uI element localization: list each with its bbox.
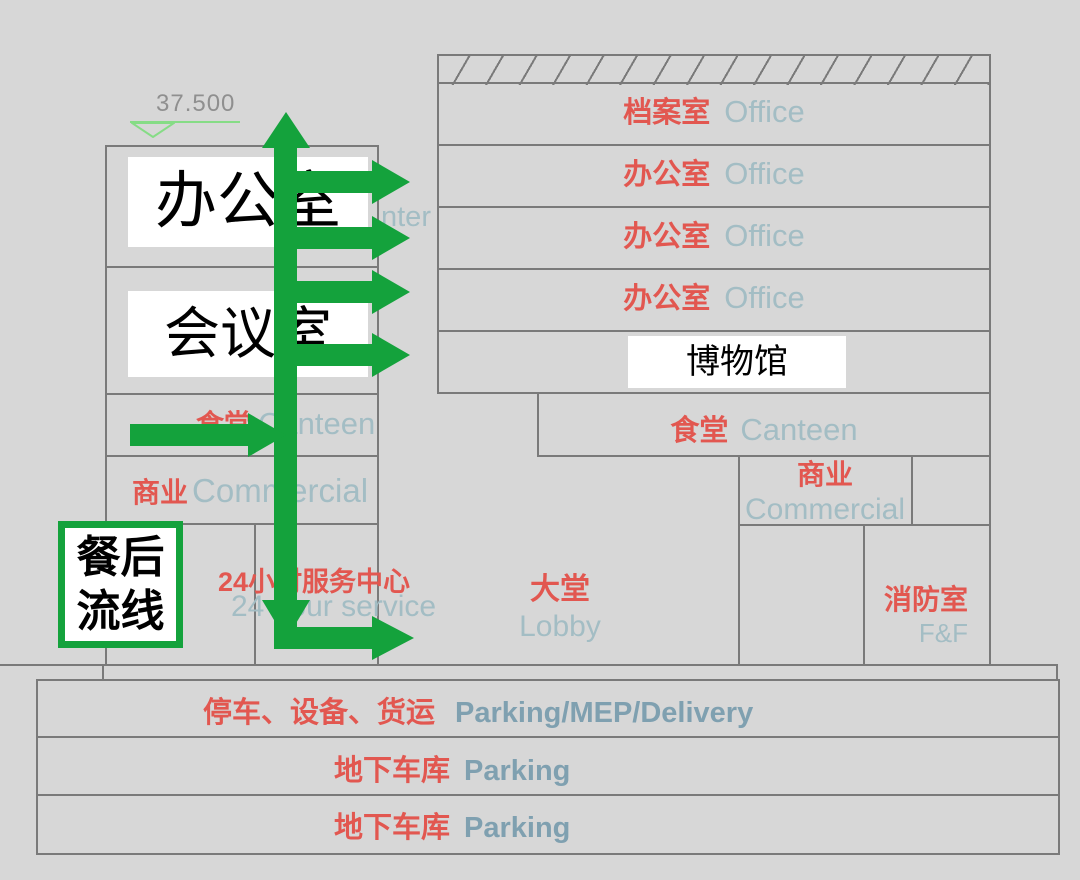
room-commercial-right-en: Commercial (745, 495, 905, 525)
room-office-1-en: Office (724, 158, 804, 189)
flow-bottom-shaft (274, 627, 372, 649)
room-lobby-zh: 大堂 (530, 575, 590, 605)
museum-label-box: 博物馆 (628, 336, 846, 388)
basement-level-2: 地下车库 Parking (334, 757, 570, 786)
right-floor-line-2 (437, 206, 991, 208)
basement-line-1 (36, 736, 1058, 738)
elevation-triangle-icon (131, 122, 175, 138)
basement-level-1-zh: 停车、设备、货运 (203, 699, 435, 728)
flow-branch-4-shaft (286, 344, 372, 366)
right-floor-line-1 (437, 144, 991, 146)
room-commercial-left-zh: 商业 (132, 479, 188, 507)
basement-level-2-zh: 地下车库 (334, 757, 450, 786)
flow-up-arrowhead (262, 112, 310, 148)
right-floor-line-4 (437, 330, 991, 332)
room-fire: 消防室 F&F (866, 586, 986, 646)
room-archive-zh: 档案室 (623, 99, 710, 128)
right-floor-line-3 (437, 268, 991, 270)
basement-level-2-en: Parking (464, 757, 570, 786)
room-office-3-zh: 办公室 (623, 285, 710, 314)
flow-bottom-arrowhead (372, 616, 414, 660)
flow-branch-2-arrowhead (372, 216, 410, 260)
room-canteen-right-en: Canteen (740, 414, 857, 445)
flow-branch-3-shaft (286, 281, 372, 303)
room-commercial-left: 商业 Commercial (132, 474, 368, 507)
room-archive-en: Office (724, 96, 804, 127)
room-office-2: 办公室 Office (437, 220, 991, 252)
fire-room-left-wall (863, 524, 865, 666)
flow-vertical-shaft (274, 140, 297, 630)
room-lobby-en: Lobby (519, 612, 601, 642)
room-fire-en: F&F (919, 620, 968, 646)
flow-branch-1-shaft (286, 171, 372, 193)
room-office-1-zh: 办公室 (623, 161, 710, 190)
room-office-3-en: Office (724, 282, 804, 313)
right-hatch-bottom-line (437, 82, 991, 84)
elevation-label: 37.500 (156, 92, 235, 116)
building-section-diagram: 37.500 档案室 Office 办公室 Office 办公室 Office (0, 0, 1080, 880)
flow-legend-box: 餐后 流线 (58, 521, 183, 648)
room-commercial-right-zh: 商业 (797, 461, 853, 489)
left-floor-line-1 (105, 266, 379, 268)
room-fire-zh: 消防室 (884, 586, 968, 614)
ground-line (0, 664, 1058, 666)
right-canteen-bottom-line (537, 455, 991, 457)
room-office-1: 办公室 Office (437, 158, 991, 190)
room-lobby: 大堂 Lobby (495, 575, 625, 642)
room-office-3: 办公室 Office (437, 282, 991, 314)
museum-label-text: 博物馆 (686, 345, 788, 379)
left-floor-line-2 (105, 393, 379, 395)
flow-branch-2-shaft (286, 227, 372, 249)
basement-level-3-zh: 地下车库 (334, 814, 450, 843)
flow-legend-line2: 流线 (77, 585, 165, 639)
flow-canteen-arrow-shaft (130, 424, 248, 446)
flow-branch-1-arrowhead (372, 160, 410, 204)
room-canteen-right: 食堂 Canteen (537, 414, 991, 446)
basement-level-3: 地下车库 Parking (334, 814, 570, 843)
right-floor-line-5 (437, 392, 991, 394)
roof-hatch (437, 54, 991, 85)
left-building-roof-line (105, 145, 379, 147)
room-office-2-zh: 办公室 (623, 223, 710, 252)
basement-level-3-en: Parking (464, 814, 570, 843)
room-office-2-en: Office (724, 220, 804, 251)
left-floor-line-3 (105, 455, 379, 457)
basement-level-1: 停车、设备、货运 Parking/MEP/Delivery (203, 699, 753, 728)
flow-canteen-arrowhead (248, 413, 286, 457)
basement-line-2 (36, 794, 1058, 796)
basement-level-1-en: Parking/MEP/Delivery (455, 699, 753, 728)
flow-branch-4-arrowhead (372, 333, 410, 377)
room-commercial-right: 商业 Commercial (738, 461, 912, 525)
room-canteen-right-zh: 食堂 (670, 417, 728, 446)
flow-legend-line1: 餐后 (77, 531, 165, 585)
room-archive: 档案室 Office (437, 96, 991, 128)
flow-branch-3-arrowhead (372, 270, 410, 314)
